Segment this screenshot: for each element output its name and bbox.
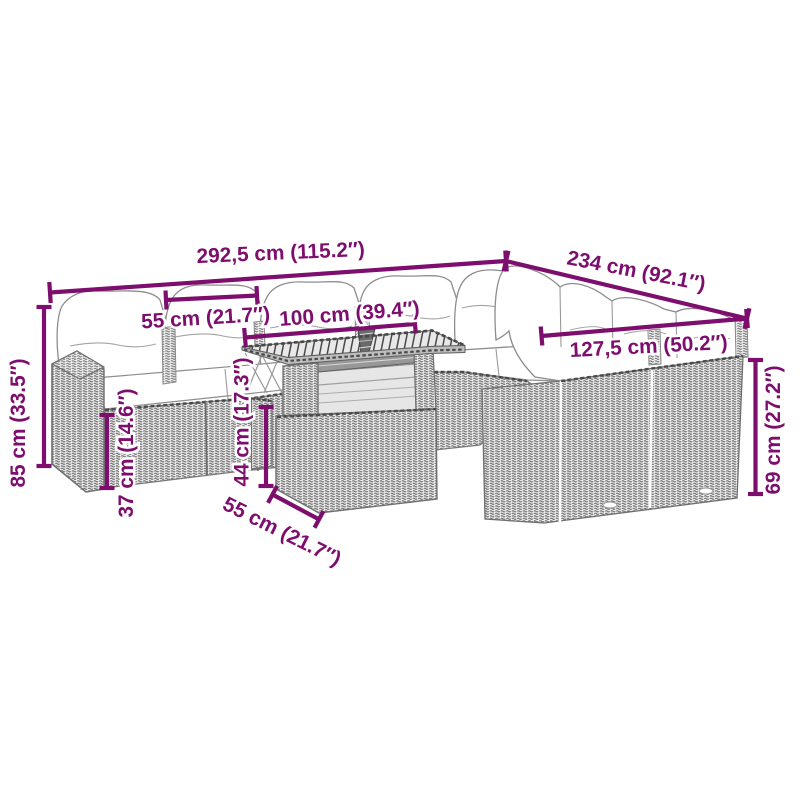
svg-text:85 cm (33.5″): 85 cm (33.5″): [7, 358, 30, 487]
svg-text:69 cm (27.2″): 69 cm (27.2″): [762, 365, 785, 494]
svg-text:44 cm (17.3″): 44 cm (17.3″): [231, 357, 254, 486]
svg-text:37 cm (14.6″): 37 cm (14.6″): [115, 388, 138, 517]
